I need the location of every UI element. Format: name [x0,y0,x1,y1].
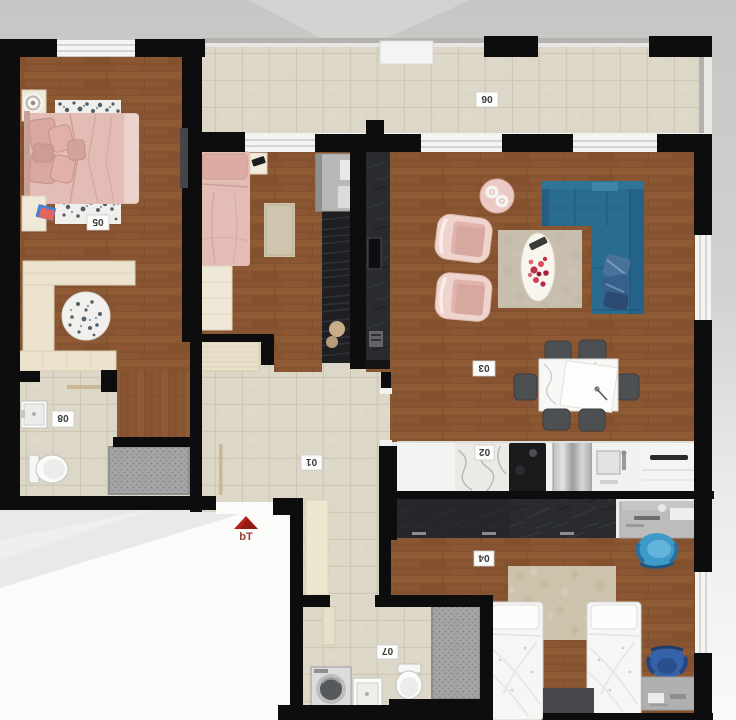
svg-text:02: 02 [479,446,491,457]
svg-text:08: 08 [57,412,69,423]
svg-text:03: 03 [478,362,490,373]
svg-text:01: 01 [306,456,318,467]
svg-text:04: 04 [478,552,490,563]
svg-text:07: 07 [382,645,394,656]
svg-text:bT: bT [239,531,253,543]
svg-text:05: 05 [92,216,104,227]
svg-text:06: 06 [481,93,493,104]
